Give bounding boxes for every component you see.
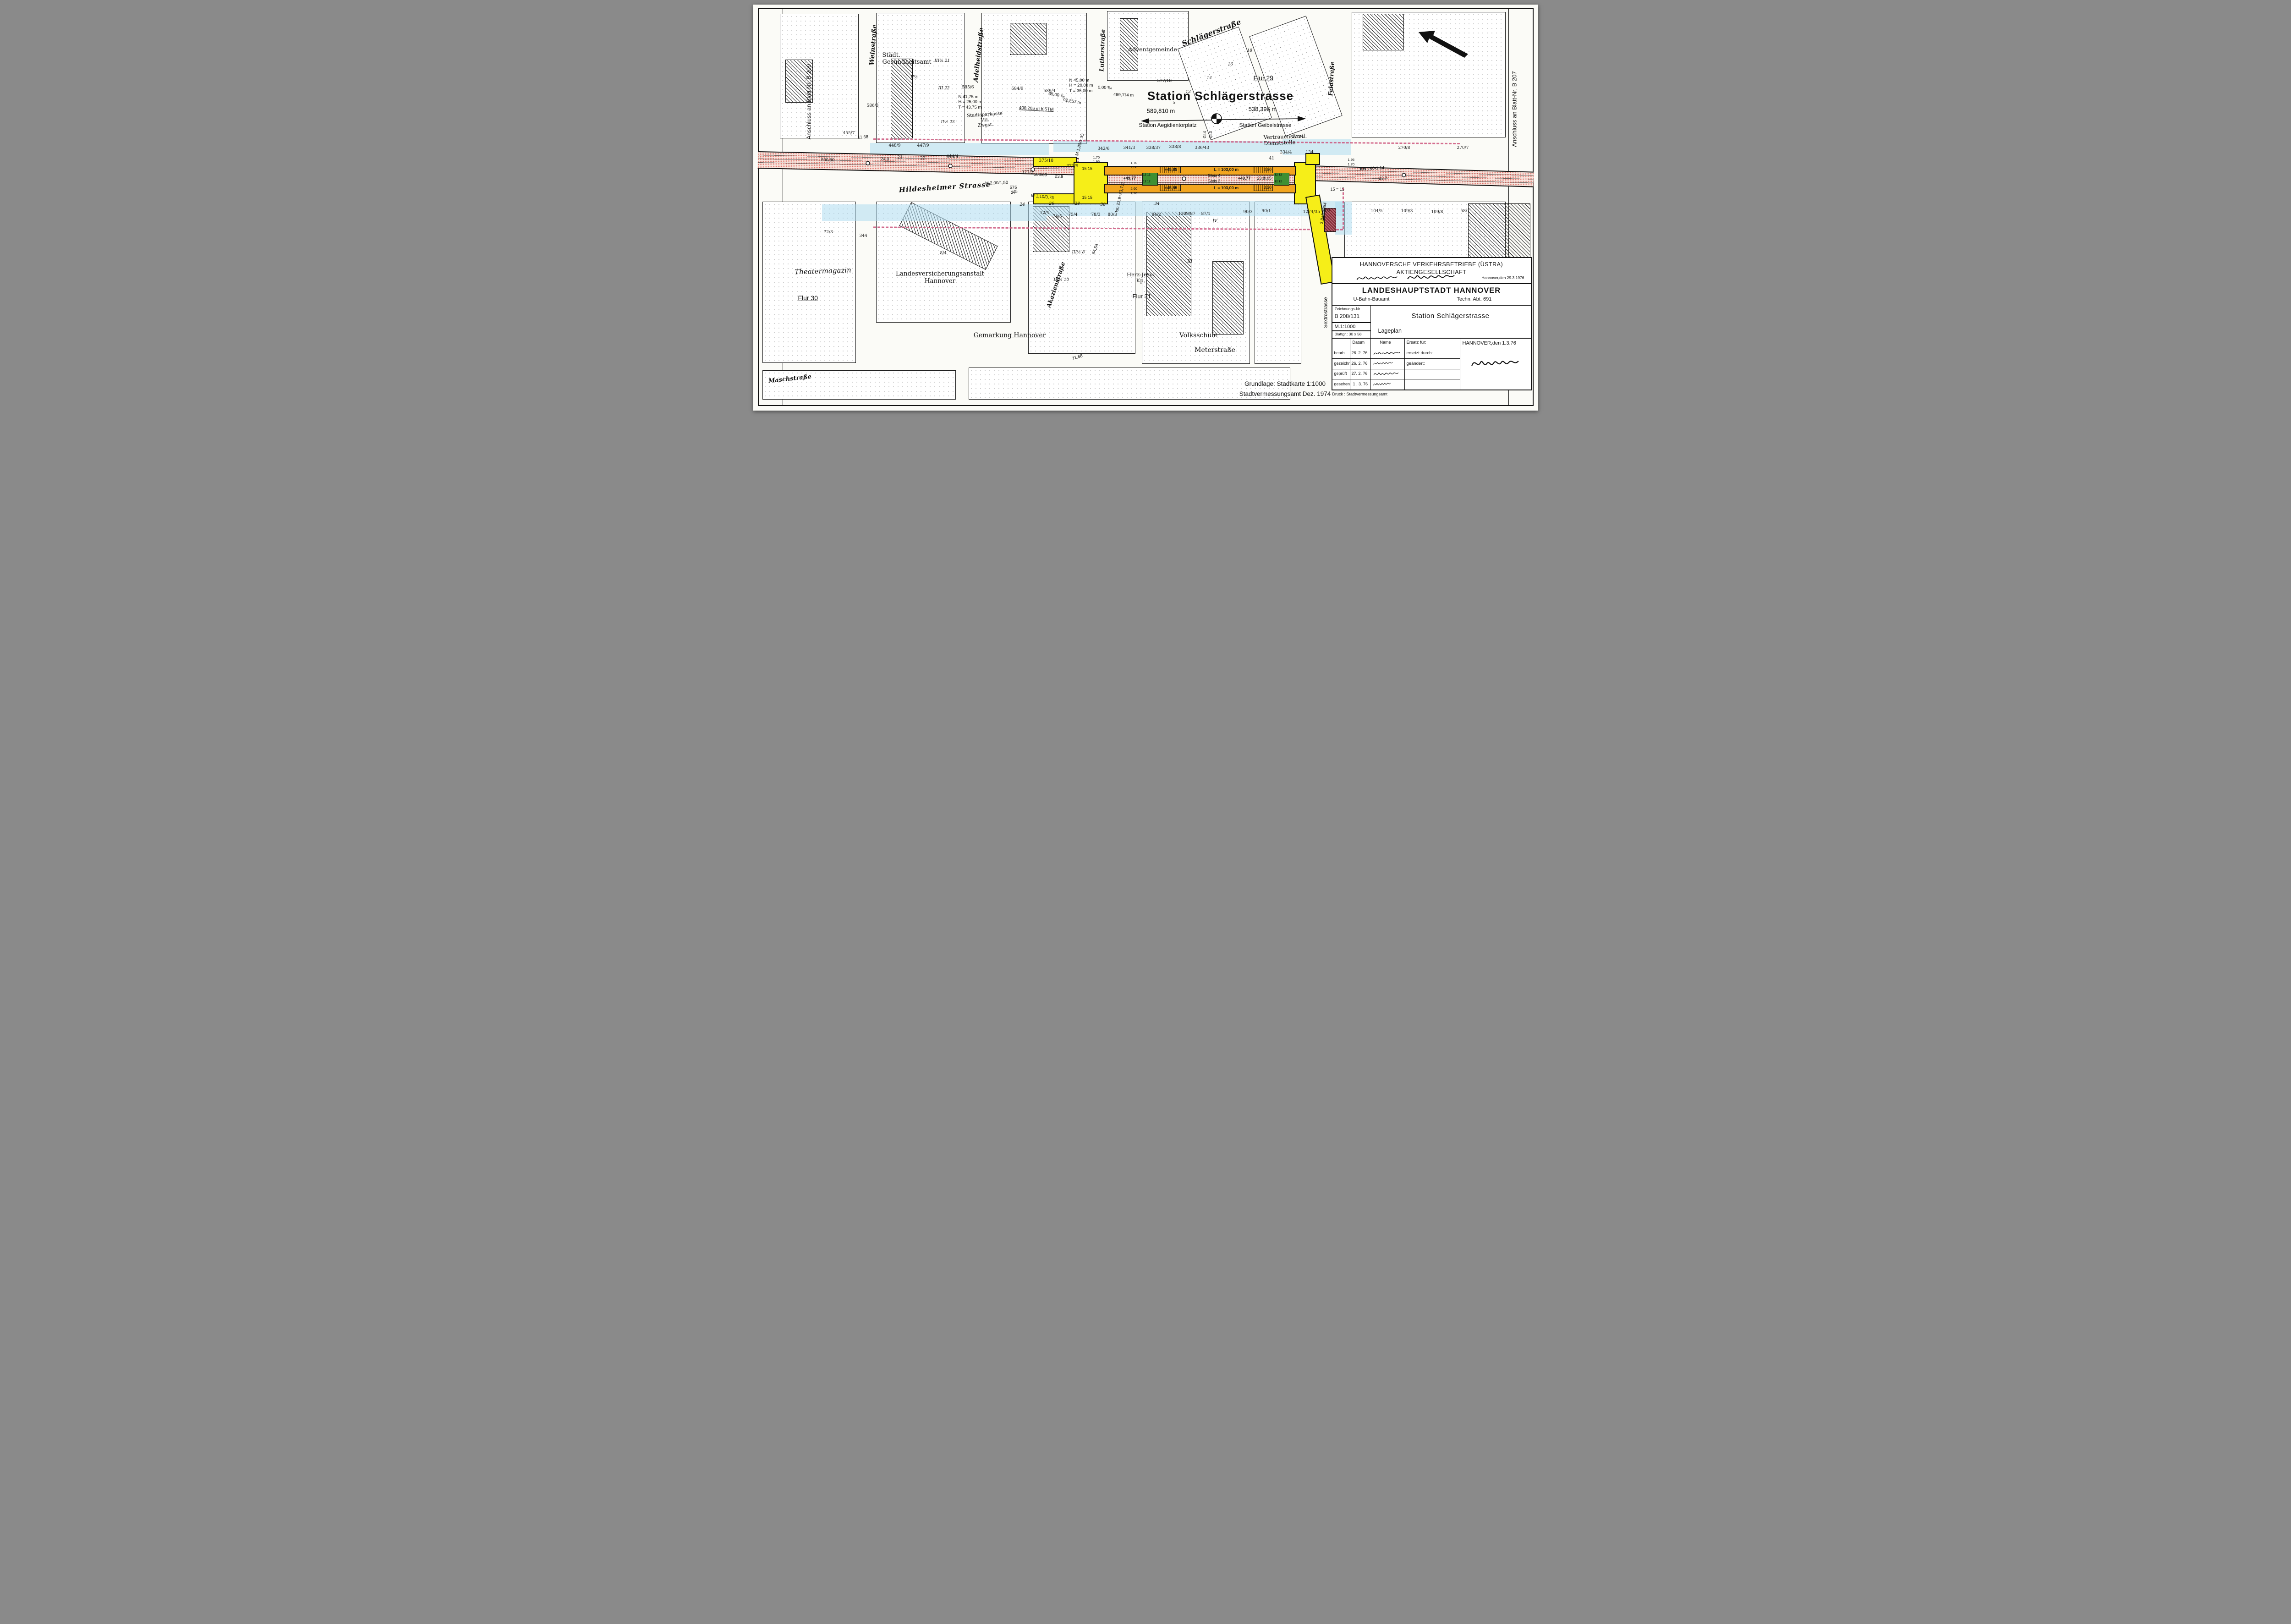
title-block-divider xyxy=(1370,305,1371,338)
parcel-label: 104/5 xyxy=(1371,209,1383,214)
parcel-label: 78/3 xyxy=(1091,213,1101,217)
parcel-label: 75/4 xyxy=(1069,213,1078,217)
parcel-label: 72/3 xyxy=(824,230,833,235)
storey-label: III½ 10 xyxy=(1054,278,1069,282)
building-gesundheitsamt xyxy=(891,59,913,138)
row-date: 27. 2. 76 xyxy=(1352,371,1368,376)
ersatz-fuer-label: Ersatz für: xyxy=(1407,340,1426,345)
building-volksschule xyxy=(1212,261,1244,335)
title-block-drawing-title: Station Schlägerstrasse xyxy=(1370,312,1531,320)
parcel-label: 455/7 xyxy=(843,131,855,136)
table-line xyxy=(1460,338,1461,390)
track-spacing-label: 4,05 xyxy=(1264,176,1272,181)
drawing-no-label: Zeichnungs-Nr. xyxy=(1335,307,1361,311)
measure-label: 11,68 xyxy=(857,134,868,140)
flur-29-label: Flur 29 xyxy=(1254,74,1274,82)
row-date: 26. 2. 76 xyxy=(1352,351,1368,355)
row-date: 26. 2. 76 xyxy=(1352,361,1368,366)
station-label-gleis3: Gleis 3 xyxy=(1208,179,1221,183)
source-note-line1: Grundlage: Stadtkarte 1:1000 xyxy=(1244,380,1326,387)
place-label-gesundheitsamt: Städt. Gesundheitsamt xyxy=(882,52,932,66)
parcel-label: 72/4 xyxy=(1040,211,1049,215)
storey-label: II½ xyxy=(911,75,918,80)
platform-width-label: 3,50 xyxy=(1264,167,1272,172)
measure-label: 24,0 xyxy=(880,157,889,162)
parcel-label: 21 xyxy=(898,155,903,160)
dim-label: 1,95 xyxy=(1348,158,1355,162)
rails-texture xyxy=(1293,169,1533,184)
table-line xyxy=(1332,348,1460,348)
storey-label: IV xyxy=(1213,219,1217,224)
signature xyxy=(1470,357,1520,370)
parcel-label: 90/1 xyxy=(1262,209,1271,214)
company-date: Hannover,den 29.3.1976 xyxy=(1481,275,1524,280)
signature xyxy=(1373,350,1401,357)
place-label-herz-jesu: Herz-Jesu- Kp. xyxy=(1127,272,1155,284)
platform-width-label: 3,50 xyxy=(1264,185,1272,190)
parcel-label: 87/1 xyxy=(1201,212,1211,216)
stair-width-label: 12 12 xyxy=(1275,180,1282,183)
parcel-label: 74/5 xyxy=(1053,214,1062,219)
measure-label-gradient: 0,00 ‰ xyxy=(1097,85,1112,90)
authority-name: LANDESHAUPTSTADT HANNOVER xyxy=(1332,286,1531,295)
housenumber-label: 18 xyxy=(1247,49,1252,53)
building-volksschule xyxy=(1146,212,1191,316)
housenumber-label: 28 xyxy=(1075,202,1080,206)
rails-texture xyxy=(757,155,1078,172)
street-label-lutherstrasse: Lutherstraße xyxy=(1098,29,1107,72)
measure-label: 23,9 xyxy=(1054,174,1063,180)
parcel-label: 134 xyxy=(1306,150,1314,155)
parcel-label: 270/8 xyxy=(1398,146,1410,150)
parcel-label: 584/9 xyxy=(1012,87,1024,91)
place-date: HANNOVER,den 1.3.76 xyxy=(1463,340,1516,346)
table-line xyxy=(1370,338,1371,390)
stair-width-label: 12 12 xyxy=(1143,173,1151,176)
dim-label: 1,70 xyxy=(1131,191,1138,195)
map-sheet: Station Schlägerstrasse 589,810 m 538,39… xyxy=(753,5,1538,411)
turnout-label: EW 760-1:14 xyxy=(1359,165,1384,171)
parcel-label: 23 xyxy=(921,156,926,161)
place-label-lva: Landesversicherungsanstalt Hannover xyxy=(896,270,984,285)
flur-30-label: Flur 30 xyxy=(798,294,818,302)
storey-label: III 22 xyxy=(938,86,950,91)
storey-label: III½ 8 xyxy=(1072,250,1085,255)
table-line xyxy=(1332,369,1460,369)
col-header-datum: Datum xyxy=(1353,340,1365,345)
housenumber-label: 14 xyxy=(1207,76,1212,81)
edge-label-right: Anschluss an Blatt-Nr. B 207 xyxy=(1511,71,1518,147)
street-label-sextrostrasse: Sextrostrasse xyxy=(1323,297,1329,328)
storey-label: III xyxy=(1188,259,1193,264)
building-hatched xyxy=(1363,14,1404,50)
parcel-label: 109/3 xyxy=(1401,209,1413,214)
company-name-line1: HANNOVERSCHE VERKEHRSBETRIEBE (ÜSTRA) xyxy=(1332,261,1531,268)
signature xyxy=(1373,381,1391,388)
parcel-label: 336/43 xyxy=(1195,146,1210,150)
parcel-label: 577/18 xyxy=(1157,79,1172,83)
housenumber-label: 30 xyxy=(1101,203,1106,207)
authority-dept: Techn. Abt. 691 xyxy=(1457,296,1492,302)
title-block-divider xyxy=(1332,330,1370,331)
drawing-scale: M.1:1000 xyxy=(1335,324,1356,329)
parcel-label: 377/2 xyxy=(1022,170,1034,175)
housenumber-label: 24 xyxy=(1020,203,1025,207)
housenumber-label: 34 xyxy=(1155,202,1160,206)
row-label: bearb. xyxy=(1334,351,1346,355)
station-label-length: L = 103,00 m xyxy=(1214,186,1239,190)
chainage-right-station: Station Geibelstrasse xyxy=(1239,122,1291,129)
parcel-label: 25 xyxy=(1013,190,1018,194)
measure-label: 500/60 xyxy=(1033,172,1047,177)
parcel-label: 94/3 xyxy=(1321,209,1331,214)
row-label: geprüft xyxy=(1334,371,1347,376)
parcel-label: 344 xyxy=(860,234,867,238)
parcel-label: 448/9 xyxy=(889,143,901,148)
source-note-line2: Stadtvermessungsamt Dez. 1974 xyxy=(1239,390,1331,397)
dim-label: 1,95 xyxy=(1093,159,1100,164)
city-block xyxy=(762,370,956,400)
parcel-label: 1274/35 xyxy=(1303,210,1320,214)
flur-31-label: Flur 31 xyxy=(1133,293,1151,300)
station-label-level: +45,85 xyxy=(1165,167,1178,172)
station-label-level: +49,77 xyxy=(1238,176,1251,181)
housenumber-label: 12 xyxy=(1186,90,1191,94)
city-block xyxy=(1255,202,1301,364)
dim-label: 15 15 xyxy=(1082,166,1093,171)
city-block xyxy=(762,202,856,363)
parcel-label: 338/8 xyxy=(1169,145,1181,149)
parcel-label: 270/7 xyxy=(1457,146,1469,150)
dim-label: 1,70 xyxy=(1131,161,1138,165)
title-block: HANNOVERSCHE VERKEHRSBETRIEBE (ÜSTRA) AK… xyxy=(1332,257,1532,390)
table-line xyxy=(1404,338,1405,390)
title-block-divider xyxy=(1332,338,1531,339)
ersetzt-durch-label: ersetzt durch: xyxy=(1407,351,1433,356)
parcel-label: 338/37 xyxy=(1146,146,1161,150)
station-label-length: L = 103,00 m xyxy=(1214,167,1239,172)
tunnel-shading xyxy=(1053,141,1283,152)
parcel-label: 447/9 xyxy=(917,143,929,148)
building-hatched xyxy=(1010,23,1047,55)
measure-label-clearance: N 45,00 m H = 20,00 m T = 35,00 m xyxy=(1069,78,1093,93)
parcel-label: 109/8 xyxy=(1431,210,1443,214)
building-adventgemeinde xyxy=(1120,18,1138,71)
dim-label: 1,70 xyxy=(1093,155,1100,159)
title-block-divider xyxy=(1332,305,1531,306)
parcel-label: 444/4 xyxy=(947,154,959,159)
druck-note: Druck : Stadtvermessungsamt xyxy=(1332,392,1388,396)
signature xyxy=(1373,360,1393,367)
stair-width-label: 12 12 xyxy=(1143,180,1151,183)
parcel-label: 80/3 xyxy=(1108,213,1117,217)
parcel-label: 341/3 xyxy=(1124,146,1135,150)
street-label-meterstrasse: Meterstraße xyxy=(1195,346,1235,354)
storey-label: III½ 21 xyxy=(935,59,950,63)
parcel-label: 585/6 xyxy=(962,85,974,90)
row-label: gezeichn. xyxy=(1334,361,1352,366)
parcel-label: 41 xyxy=(1269,156,1274,161)
dim-label: 2,60 xyxy=(1131,187,1138,191)
chainage-left-station: Station Aegidientorplatz xyxy=(1139,122,1196,129)
geaendert-label: geändert: xyxy=(1407,361,1425,366)
measure-label-clearance: N 41,75 m H = 25,00 m T = 43,75 m xyxy=(959,94,982,110)
chainage-right-value: 538,396 m xyxy=(1249,106,1277,113)
signature xyxy=(1355,274,1399,283)
signature xyxy=(1373,370,1399,378)
station-label-level: +49,77 xyxy=(1124,176,1136,181)
parcel-label: 576/4 xyxy=(1292,135,1304,139)
housenumber-label: 26 xyxy=(1049,202,1054,206)
parcel-label: 5 xyxy=(1173,101,1176,105)
edge-label-left: Anschluss an Blatt Nr. B 209 xyxy=(806,64,812,140)
dim-label: 15 15 xyxy=(1082,195,1093,200)
place-label-volksschule: Volksschule xyxy=(1179,332,1217,339)
place-label-stadtsparkasse: Stadtsparkasse VII. Zwgst. xyxy=(967,111,1003,129)
parcel-label: 8/4 xyxy=(940,251,947,256)
parcel-label: 371/9 xyxy=(1067,164,1079,169)
storey-label: II½ 23 xyxy=(941,120,955,125)
measure-label: 499,114 m xyxy=(1113,92,1134,98)
gleis4-tick-label: Gl.4 xyxy=(1203,131,1207,138)
place-label-adventgemeinde: Adventgemeinde xyxy=(1128,46,1177,53)
parcel-label: 1309/87 xyxy=(1178,212,1195,216)
title-block-subtitle: Lageplan xyxy=(1378,328,1402,334)
parcel-label: 58/1 xyxy=(1461,209,1470,214)
housenumber-label: 16 xyxy=(1228,62,1233,67)
station-label-level: +45,85 xyxy=(1165,186,1178,190)
authority-office: U-Bahn-Bauamt xyxy=(1354,296,1390,302)
parcel-label: 90/3 xyxy=(1244,210,1253,214)
parcel-label: 375/18 xyxy=(1039,159,1054,163)
dim-label: 15 = 15 xyxy=(1331,187,1344,192)
station-label-gleis4: Gleis 4 xyxy=(1208,173,1221,178)
title-block-divider xyxy=(1332,283,1531,284)
parcel-label: 342/6 xyxy=(1098,147,1110,151)
gleis3-tick-label: Gl.3 xyxy=(1209,131,1213,138)
measure-label: 500/80 xyxy=(821,158,834,163)
chainage-left-value: 589,810 m xyxy=(1147,108,1175,115)
parcel-label: 589/4 xyxy=(1044,89,1056,93)
table-line xyxy=(1332,379,1460,379)
dim-label: 1,70 xyxy=(1348,162,1355,166)
parcel-label: 586/3 xyxy=(867,104,879,108)
tunnel-shading xyxy=(822,204,1047,221)
measure-label: M 2,00/1,50 xyxy=(985,180,1008,186)
station-label: 23,7 xyxy=(1379,176,1387,181)
place-label-gemarkung-hannover: Gemarkung Hannover xyxy=(974,332,1046,339)
dim-label: 2,60 xyxy=(1131,165,1138,169)
row-date: 1 . 3. 76 xyxy=(1353,382,1368,386)
title-block-divider xyxy=(1332,322,1370,323)
drawing-no-value: B 208/131 xyxy=(1335,313,1360,319)
stair-width-label: 12 12 xyxy=(1275,173,1282,176)
parcel-label: 334/4 xyxy=(1280,150,1292,155)
table-line xyxy=(1332,358,1460,359)
tunnel-boundary-dashed-end xyxy=(1343,188,1344,229)
sheet-size: Blattgr.: 30 x 58 xyxy=(1335,332,1362,336)
row-label: gesehen xyxy=(1334,382,1350,386)
drawing-title: Station Schlägerstrasse xyxy=(1147,89,1293,103)
col-header-name: Name xyxy=(1380,340,1391,345)
signature xyxy=(1406,272,1456,283)
parcel-label: 84/2 xyxy=(1152,213,1161,217)
